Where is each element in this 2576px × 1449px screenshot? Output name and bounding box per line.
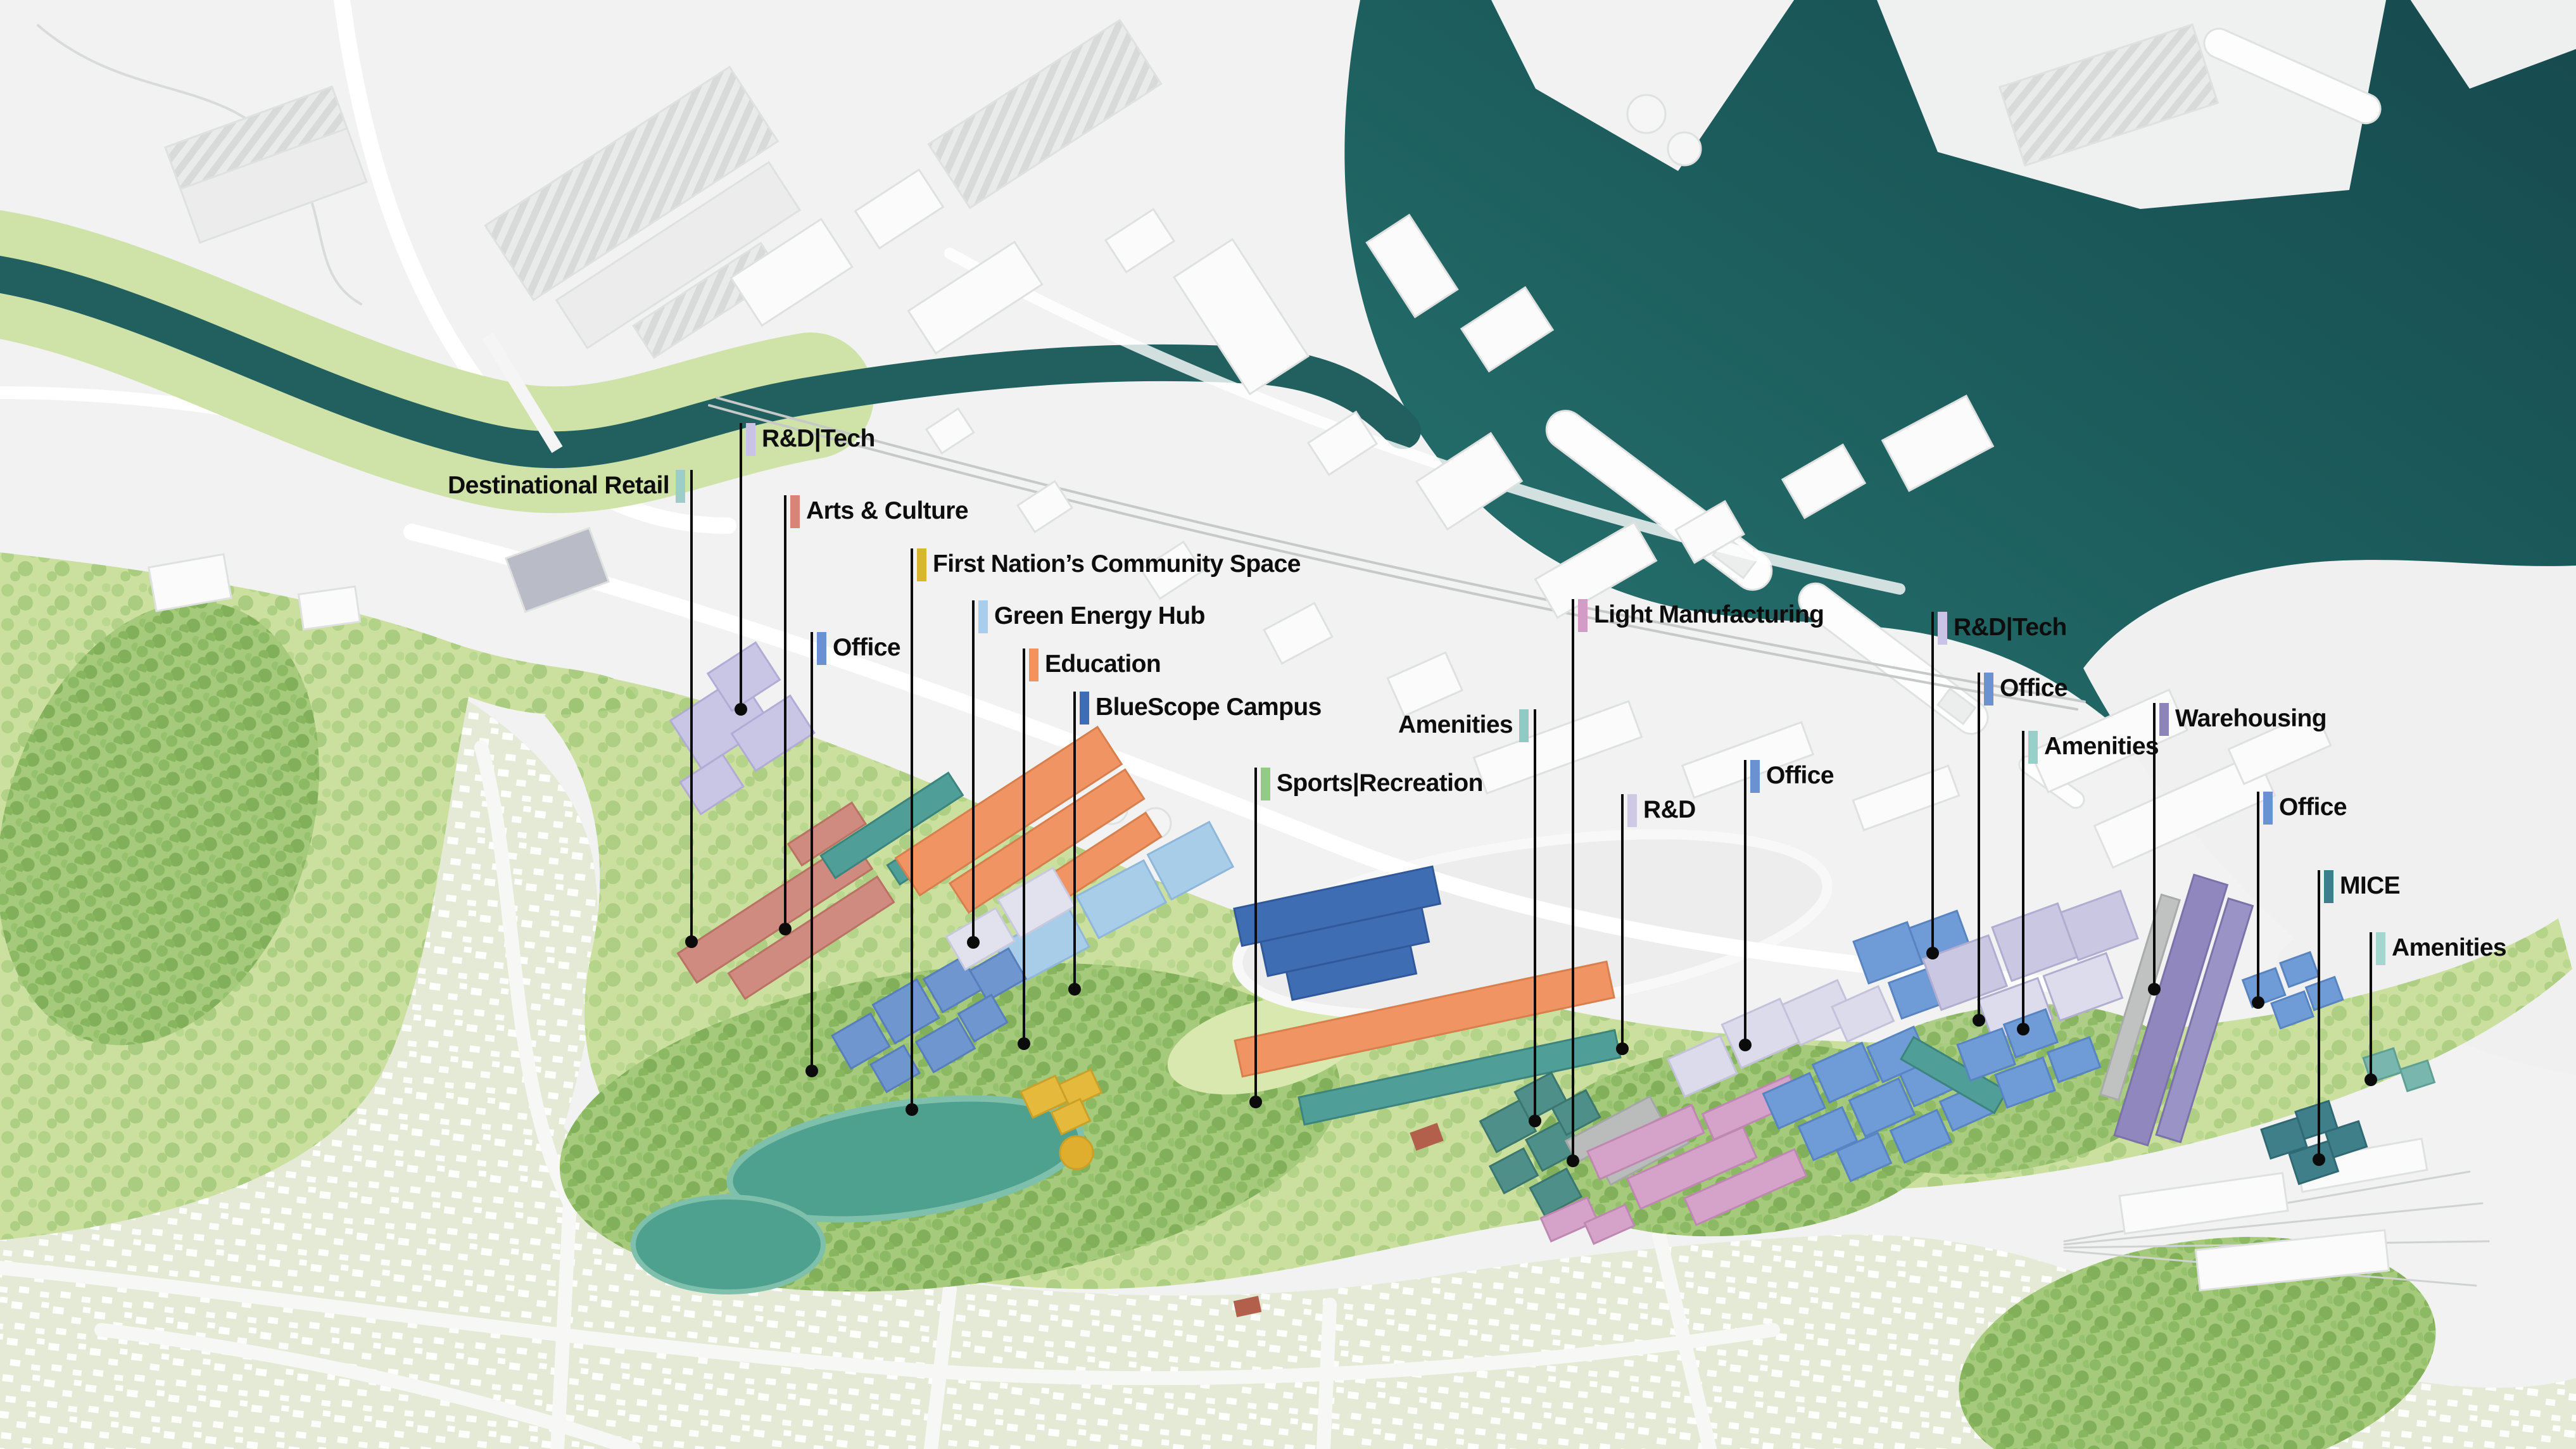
leader-dot [2313,1153,2325,1166]
leader-dot [2017,1023,2030,1035]
leader-dot [805,1065,818,1077]
leader-line [1073,692,1076,989]
callout-label: Sports|Recreation [1277,768,1483,799]
leader-dot [1926,947,1939,959]
leader-line [2257,792,2259,1003]
leader-line [2153,703,2156,989]
callout-label: BlueScope Campus [1095,692,1322,723]
leader-dot [1567,1155,1579,1167]
callout-label: Office [833,632,900,664]
callout-label: Green Energy Hub [994,600,1205,632]
leader-line [1621,794,1624,1049]
masterplan-screenshot: R&D|Tech Destinational Retail Arts & Cul… [0,0,2576,1449]
callout-label: Destinational Retail [448,470,669,502]
legend-swatch [746,423,755,456]
leader-dot [2148,983,2161,996]
callout-label: Amenities [1398,709,1513,741]
legend-swatch [1938,612,1947,645]
legend-swatch [1029,649,1039,681]
leader-dot [2364,1073,2377,1086]
legend-swatch [1578,599,1588,632]
leader-dot [779,923,792,935]
legend-swatch [1519,709,1529,742]
leader-dot [1529,1115,1541,1127]
leader-line [972,600,975,942]
legend-swatch [917,548,926,581]
leader-dot [906,1103,918,1116]
callout-label: MICE [2340,870,2400,902]
leader-line [2318,870,2320,1160]
leader-line [1023,649,1025,1044]
leader-dot [1018,1037,1030,1050]
legend-swatch [1261,768,1270,800]
legend-swatch [1627,794,1637,827]
leader-line [1534,709,1536,1121]
leader-line [811,632,813,1071]
legend-swatch [1984,673,1993,706]
legend-swatch [2376,932,2385,965]
pond-small [633,1197,823,1292]
legend-swatch [1080,692,1089,724]
callout-label: Amenities [2044,731,2159,762]
leader-line [784,495,786,929]
callout-label: Office [1766,760,1834,792]
callout-label: First Nation’s Community Space [933,548,1301,580]
legend-swatch [2324,870,2333,903]
callout-label: Education [1045,649,1161,680]
leader-line [1978,673,1980,1020]
leader-line [740,423,742,709]
legend-swatch [2159,703,2169,736]
callout-label: Warehousing [2175,703,2327,735]
legend-swatch [676,470,685,503]
leader-dot [685,935,698,948]
leader-line [1254,768,1257,1102]
callout-label: Office [2000,673,2068,704]
leader-dot [1739,1039,1752,1051]
leader-dot [1068,983,1081,996]
legend-swatch [1750,760,1760,793]
legend-swatch [790,495,800,528]
legend-swatch [2028,731,2038,764]
leader-dot [967,936,980,949]
leader-line [1744,760,1746,1045]
legend-swatch [817,632,826,665]
leader-line [911,548,913,1110]
callout-label: R&D [1643,794,1696,826]
legend-swatch [2263,792,2273,825]
leader-dot [2252,996,2264,1009]
callout-label: Office [2279,792,2347,823]
leader-dot [1616,1042,1629,1055]
leader-dot [1973,1014,1985,1027]
legend-swatch [978,600,988,633]
leader-line [2370,932,2372,1080]
leader-line [1931,612,1934,953]
callout-label: R&D|Tech [762,423,875,455]
callout-label: Arts & Culture [806,495,968,527]
leader-line [690,470,693,942]
leader-dot [735,703,747,716]
leader-line [2022,731,2024,1029]
leader-dot [1249,1096,1262,1108]
callout-label: R&D|Tech [1954,612,2067,643]
leader-line [1572,599,1574,1161]
callout-label: Amenities [2392,932,2506,964]
callout-label: Light Manufacturing [1594,599,1824,631]
